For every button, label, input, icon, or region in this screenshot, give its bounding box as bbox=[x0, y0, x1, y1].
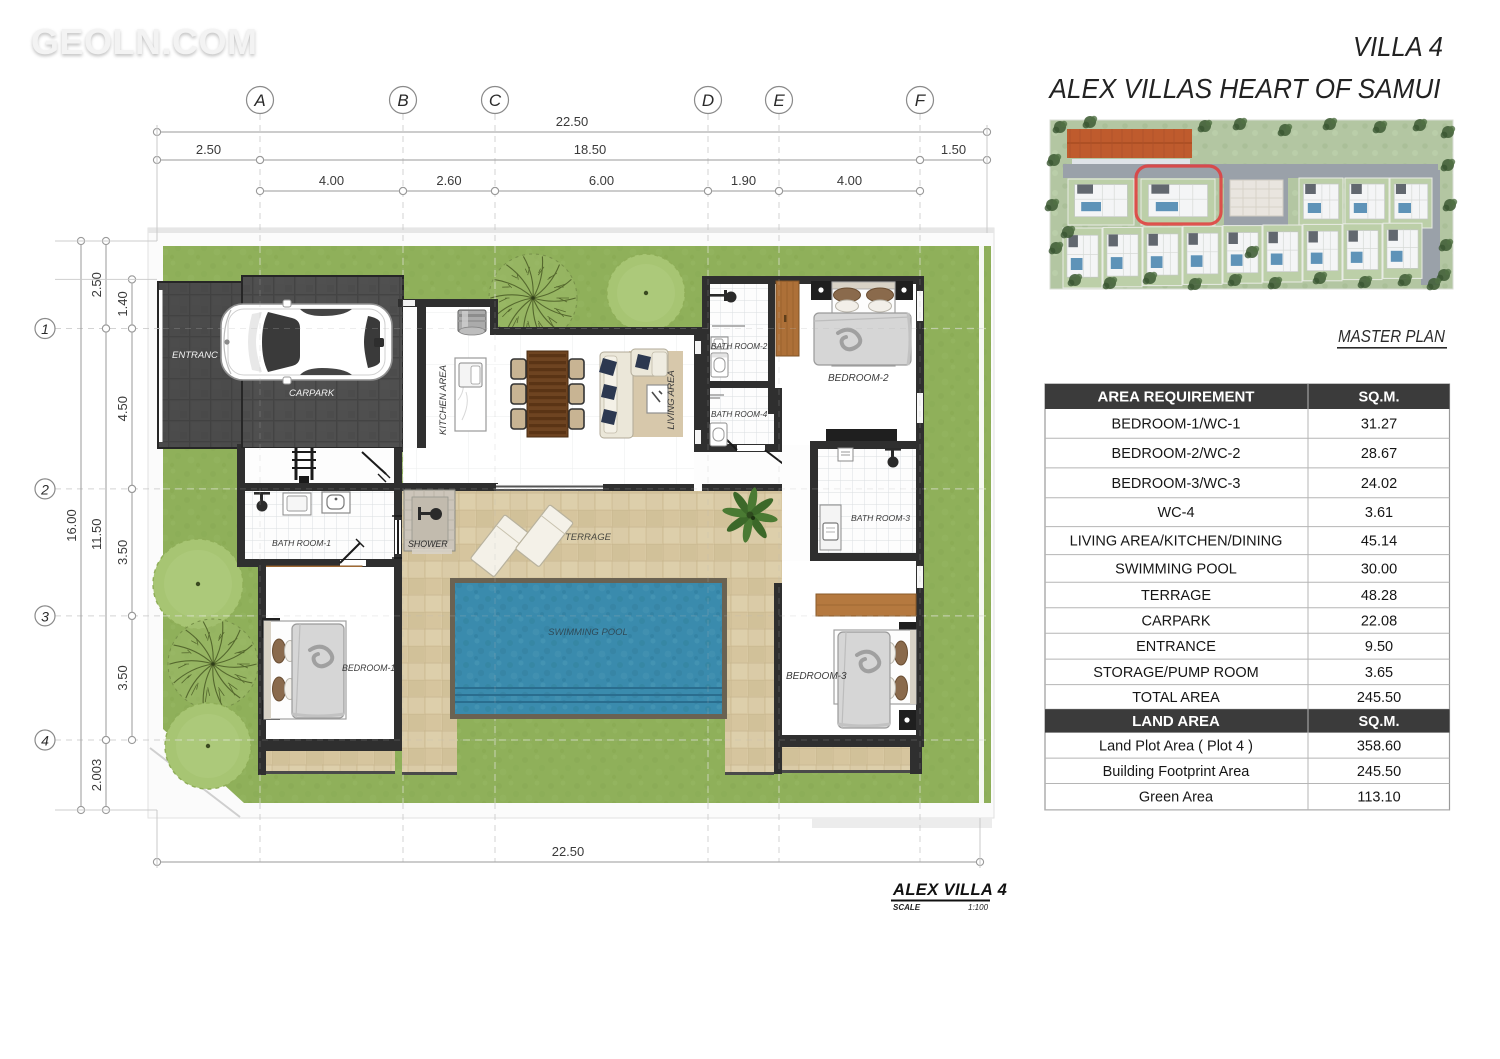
svg-text:SWIMMING POOL: SWIMMING POOL bbox=[548, 627, 628, 638]
svg-text:B: B bbox=[397, 91, 408, 110]
svg-text:4: 4 bbox=[41, 733, 49, 749]
svg-text:BATH ROOM-3: BATH ROOM-3 bbox=[851, 513, 910, 523]
svg-text:SCALE: SCALE bbox=[893, 903, 921, 912]
svg-text:1.50: 1.50 bbox=[941, 142, 966, 157]
svg-text:BEDROOM-2: BEDROOM-2 bbox=[828, 373, 889, 384]
svg-text:ENTRANC: ENTRANC bbox=[172, 350, 218, 361]
svg-text:31.27: 31.27 bbox=[1361, 417, 1397, 433]
svg-text:1:100: 1:100 bbox=[968, 903, 989, 912]
svg-text:3.65: 3.65 bbox=[1365, 665, 1393, 681]
svg-text:BEDROOM-1/WC-1: BEDROOM-1/WC-1 bbox=[1112, 417, 1241, 433]
svg-text:45.14: 45.14 bbox=[1361, 534, 1397, 550]
svg-text:4.00: 4.00 bbox=[837, 173, 862, 188]
svg-text:BATH ROOM-2: BATH ROOM-2 bbox=[711, 342, 768, 351]
svg-text:SQ.M.: SQ.M. bbox=[1358, 390, 1399, 406]
svg-text:BEDROOM-3: BEDROOM-3 bbox=[786, 671, 847, 682]
svg-text:CARPARK: CARPARK bbox=[289, 388, 335, 399]
svg-text:3.61: 3.61 bbox=[1365, 505, 1393, 521]
svg-text:18.50: 18.50 bbox=[574, 142, 607, 157]
svg-text:SWIMMING POOL: SWIMMING POOL bbox=[1115, 561, 1237, 577]
svg-text:LIVING AREA/KITCHEN/DINING: LIVING AREA/KITCHEN/DINING bbox=[1070, 534, 1283, 550]
svg-text:48.28: 48.28 bbox=[1361, 588, 1397, 604]
svg-text:22.50: 22.50 bbox=[552, 844, 585, 859]
svg-text:E: E bbox=[773, 91, 785, 110]
svg-text:F: F bbox=[915, 91, 927, 110]
svg-text:3.50: 3.50 bbox=[115, 540, 130, 565]
svg-text:2.60: 2.60 bbox=[436, 173, 461, 188]
svg-text:3: 3 bbox=[41, 608, 49, 624]
svg-text:TERRAGE: TERRAGE bbox=[1141, 588, 1211, 604]
svg-text:1.40: 1.40 bbox=[115, 291, 130, 316]
svg-text:2.003: 2.003 bbox=[89, 759, 104, 792]
svg-text:Green Area: Green Area bbox=[1139, 790, 1214, 806]
svg-text:1.90: 1.90 bbox=[731, 173, 756, 188]
svg-text:BATH ROOM-1: BATH ROOM-1 bbox=[272, 538, 331, 548]
svg-text:D: D bbox=[702, 91, 714, 110]
svg-text:VILLA 4: VILLA 4 bbox=[1353, 31, 1443, 62]
svg-text:Building Footprint Area: Building Footprint Area bbox=[1103, 764, 1251, 780]
svg-text:ENTRANCE: ENTRANCE bbox=[1136, 639, 1216, 655]
svg-text:LAND AREA: LAND AREA bbox=[1132, 713, 1220, 730]
svg-text:ALEX VILLA 4: ALEX VILLA 4 bbox=[892, 881, 1007, 899]
svg-text:A: A bbox=[253, 91, 265, 110]
svg-text:245.50: 245.50 bbox=[1357, 690, 1401, 706]
svg-text:AREA REQUIREMENT: AREA REQUIREMENT bbox=[1098, 389, 1255, 406]
svg-text:KITCHEN AREA: KITCHEN AREA bbox=[438, 365, 449, 435]
svg-text:BEDROOM-1: BEDROOM-1 bbox=[342, 663, 395, 673]
svg-text:22.50: 22.50 bbox=[556, 114, 589, 129]
svg-text:ALEX VILLAS HEART OF SAMUI: ALEX VILLAS HEART OF SAMUI bbox=[1048, 73, 1441, 104]
svg-text:MASTER PLAN: MASTER PLAN bbox=[1338, 326, 1445, 346]
svg-text:SQ.M.: SQ.M. bbox=[1358, 714, 1399, 730]
svg-text:GEOLN.COM: GEOLN.COM bbox=[31, 21, 258, 62]
svg-text:BATH ROOM-4: BATH ROOM-4 bbox=[711, 410, 768, 419]
svg-text:24.02: 24.02 bbox=[1361, 476, 1397, 492]
svg-text:TOTAL AREA: TOTAL AREA bbox=[1132, 690, 1220, 706]
svg-text:9.50: 9.50 bbox=[1365, 639, 1393, 655]
svg-text:C: C bbox=[489, 91, 502, 110]
svg-text:TERRAGE: TERRAGE bbox=[565, 532, 612, 543]
svg-text:245.50: 245.50 bbox=[1357, 764, 1401, 780]
svg-text:3.50: 3.50 bbox=[115, 665, 130, 690]
svg-text:1: 1 bbox=[41, 321, 49, 337]
svg-text:6.00: 6.00 bbox=[589, 173, 614, 188]
svg-text:4.00: 4.00 bbox=[319, 173, 344, 188]
svg-text:BEDROOM-3/WC-3: BEDROOM-3/WC-3 bbox=[1112, 476, 1241, 492]
svg-text:2.50: 2.50 bbox=[89, 272, 104, 297]
svg-text:16.00: 16.00 bbox=[64, 509, 79, 542]
svg-text:CARPARK: CARPARK bbox=[1141, 614, 1210, 630]
svg-text:28.67: 28.67 bbox=[1361, 446, 1397, 462]
svg-text:30.00: 30.00 bbox=[1361, 561, 1397, 577]
svg-text:22.08: 22.08 bbox=[1361, 614, 1397, 630]
svg-text:4.50: 4.50 bbox=[115, 396, 130, 421]
svg-text:2.50: 2.50 bbox=[196, 142, 221, 157]
svg-text:Land Plot Area ( Plot 4 ): Land Plot Area ( Plot 4 ) bbox=[1099, 738, 1253, 754]
svg-text:BEDROOM-2/WC-2: BEDROOM-2/WC-2 bbox=[1112, 446, 1241, 462]
svg-text:LIVING AREA: LIVING AREA bbox=[666, 370, 677, 429]
svg-text:358.60: 358.60 bbox=[1357, 738, 1401, 754]
svg-text:WC-4: WC-4 bbox=[1157, 505, 1194, 521]
svg-text:SHOWER: SHOWER bbox=[408, 539, 448, 549]
svg-text:11.50: 11.50 bbox=[89, 518, 104, 550]
svg-text:2: 2 bbox=[40, 481, 49, 497]
svg-text:STORAGE/PUMP ROOM: STORAGE/PUMP ROOM bbox=[1093, 665, 1258, 681]
svg-text:113.10: 113.10 bbox=[1357, 790, 1400, 806]
